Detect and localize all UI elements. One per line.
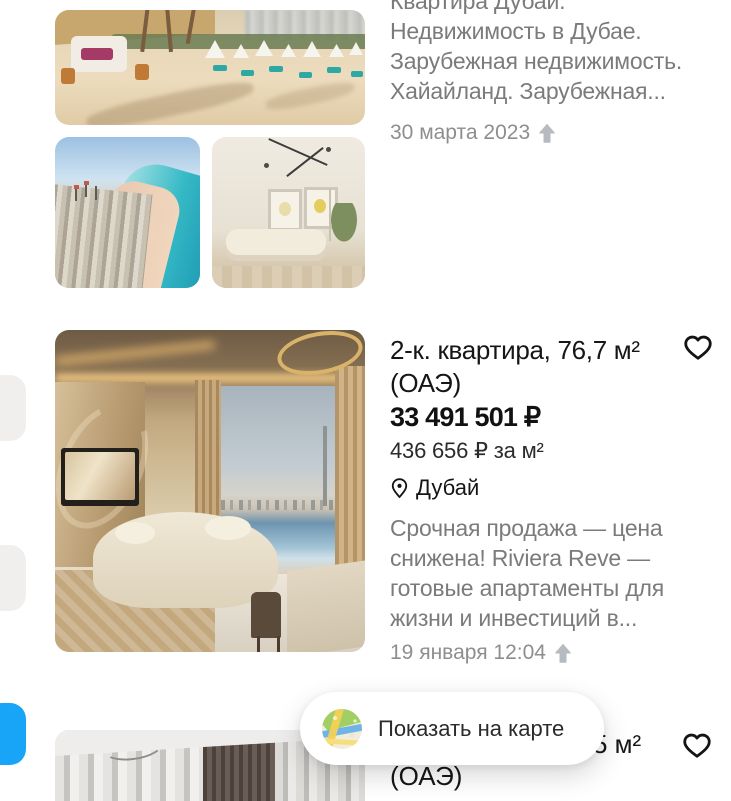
listing3-title-line2[interactable]: (ОАЭ) bbox=[390, 761, 462, 792]
favorite-heart-icon[interactable] bbox=[681, 729, 713, 759]
edge-chip-gray-1[interactable] bbox=[0, 375, 26, 441]
listing2-date: 19 января 12:04 bbox=[390, 641, 546, 665]
listing2-location-row: Дубай bbox=[390, 475, 479, 501]
listing2-photo[interactable] bbox=[55, 330, 365, 652]
location-pin-icon bbox=[390, 477, 409, 500]
listing2-title[interactable]: 2-к. квартира, 76,7 м² (ОАЭ) bbox=[390, 334, 690, 400]
listing1-date: 30 марта 2023 bbox=[390, 121, 530, 145]
listing1-photo-main[interactable] bbox=[55, 10, 365, 125]
listing1-date-row: 30 марта 2023 bbox=[390, 121, 555, 145]
bump-up-arrow-icon bbox=[539, 124, 555, 143]
listing2-price-per-m2: 436 656 ₽ за м² bbox=[390, 438, 544, 464]
show-on-map-button[interactable]: Показать на карте bbox=[300, 692, 604, 765]
search-results-screen: Квартира Дубай. Недвижимость в Дубае. За… bbox=[0, 0, 731, 801]
listing2-date-row: 19 января 12:04 bbox=[390, 641, 571, 665]
listing2-location: Дубай bbox=[416, 475, 479, 501]
bump-up-arrow-icon bbox=[555, 644, 571, 663]
edge-chip-blue[interactable] bbox=[0, 703, 26, 765]
listing1-photo-thumb-interior[interactable] bbox=[212, 137, 365, 288]
listing2-description: Срочная продажа — цена снижена! Riviera … bbox=[390, 513, 720, 633]
show-on-map-label: Показать на карте bbox=[378, 716, 564, 742]
map-icon bbox=[322, 709, 362, 749]
listing2-price[interactable]: 33 491 501 ₽ bbox=[390, 402, 540, 433]
listing1-photo-thumb-aerial[interactable] bbox=[55, 137, 200, 288]
edge-chip-gray-2[interactable] bbox=[0, 545, 26, 611]
listing1-description: Квартира Дубай. Недвижимость в Дубае. За… bbox=[390, 0, 720, 106]
